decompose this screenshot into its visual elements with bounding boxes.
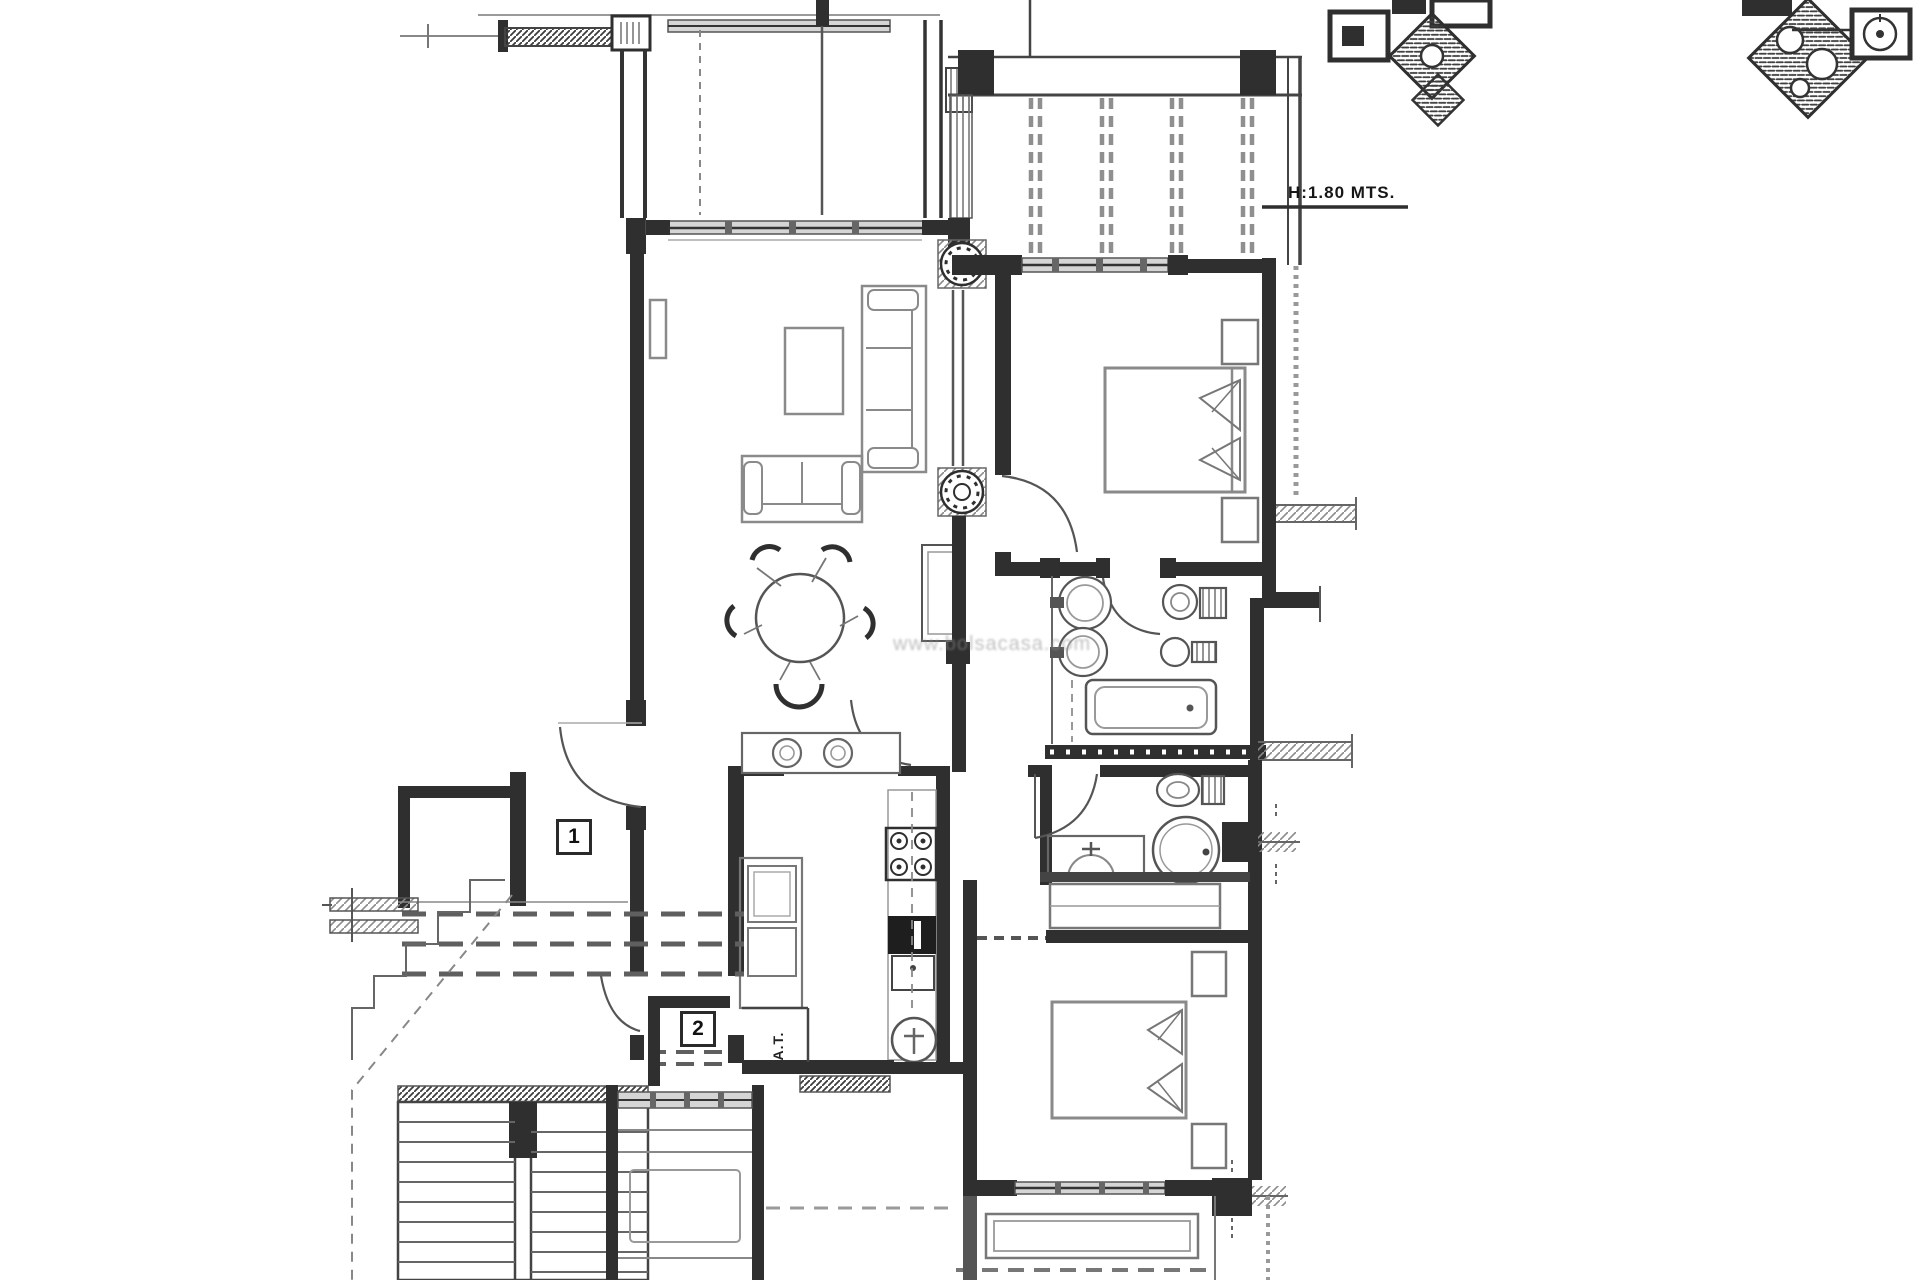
bed-symbol bbox=[1105, 320, 1258, 542]
nightstand-symbol bbox=[1222, 320, 1258, 364]
pergola-slats-symbol bbox=[1031, 98, 1252, 258]
boiler-symbol bbox=[892, 1018, 936, 1062]
neighbor-unit bbox=[400, 0, 972, 218]
height-annotation: H:1.80 MTS. bbox=[1288, 183, 1395, 203]
fridge-symbol bbox=[740, 858, 802, 1008]
nightstand-symbol bbox=[1222, 498, 1258, 542]
nightstand-symbol bbox=[1192, 952, 1226, 996]
washbasin-symbol bbox=[1050, 577, 1111, 629]
kitchen-door-arc bbox=[601, 976, 640, 1031]
top-edge-symbol-cluster-right bbox=[1742, 0, 1910, 117]
bedroom1-door-arc bbox=[1002, 476, 1077, 552]
planter-symbol bbox=[986, 1214, 1198, 1258]
step-hatch-band bbox=[800, 1076, 890, 1092]
wall-protrusion-hatch bbox=[1276, 497, 1356, 530]
bathtub-symbol bbox=[1072, 680, 1216, 742]
bedroom-2 bbox=[956, 880, 1288, 1280]
unit-marker-1: 1 bbox=[556, 819, 592, 855]
wall-protrusion-hatch bbox=[1258, 734, 1352, 768]
bathroom-1 bbox=[1045, 576, 1352, 768]
bidet-symbol bbox=[1161, 638, 1216, 666]
rug-symbol bbox=[785, 328, 843, 414]
watermark-text: www.bolsacasa.com bbox=[893, 633, 1083, 656]
sofa-symbols bbox=[742, 286, 926, 522]
top-edge-symbol-cluster-left bbox=[1330, 0, 1490, 125]
tv-cabinet-symbol bbox=[650, 300, 666, 358]
unit-marker-2: 2 bbox=[680, 1011, 716, 1047]
lower-terrace-structure bbox=[606, 1085, 958, 1280]
sink-symbol bbox=[742, 733, 900, 773]
bedroom-1 bbox=[952, 255, 1356, 600]
floor-plan-page: H:1.80 MTS. 1 2 A.T. www.bolsacasa.com bbox=[0, 0, 1920, 1280]
entrance-door-arc bbox=[558, 723, 642, 807]
bed-symbol bbox=[1052, 952, 1226, 1168]
column-circle-symbol bbox=[938, 468, 986, 516]
toilet-symbol bbox=[1163, 585, 1226, 619]
toilet-symbol bbox=[1157, 774, 1224, 806]
utility-closet-label: A.T. bbox=[756, 1024, 800, 1068]
nightstand-symbol bbox=[1192, 1124, 1226, 1168]
dining-table-symbol bbox=[727, 547, 873, 707]
